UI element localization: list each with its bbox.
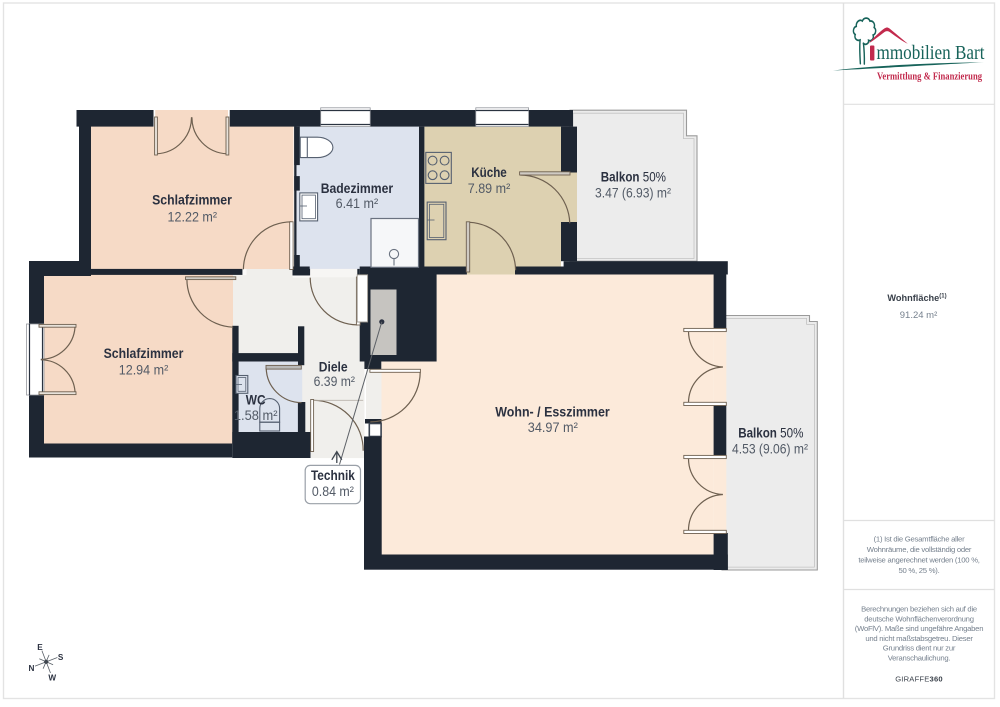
svg-text:Wohnräume, die vollständig ode: Wohnräume, die vollständig oder (867, 545, 972, 554)
svg-text:N: N (29, 664, 35, 673)
svg-text:91.24 m²: 91.24 m² (900, 310, 938, 321)
svg-text:W: W (48, 674, 56, 683)
svg-text:Grundriss dient nur zur: Grundriss dient nur zur (883, 644, 956, 653)
svg-text:(1) Ist die Gesamtfläche aller: (1) Ist die Gesamtfläche aller (874, 535, 965, 544)
svg-text:und nicht maßstabsgetreu. Dies: und nicht maßstabsgetreu. Dieser (865, 634, 973, 643)
svg-text:Küche: Küche (471, 165, 507, 180)
svg-text:deutsche Wohnflächenverordnung: deutsche Wohnflächenverordnung (864, 614, 973, 623)
svg-text:E: E (37, 643, 43, 652)
svg-text:GIRAFFE360: GIRAFFE360 (895, 675, 943, 684)
svg-text:6.39 m²: 6.39 m² (314, 374, 356, 389)
svg-text:1.58 m²: 1.58 m² (234, 408, 278, 423)
svg-text:Technik: Technik (311, 468, 355, 483)
svg-text:7.89 m²: 7.89 m² (468, 181, 511, 196)
svg-text:Schlafzimmer: Schlafzimmer (152, 192, 232, 207)
svg-text:4.53 (9.06) m²: 4.53 (9.06) m² (732, 442, 808, 457)
svg-text:Wohn- / Esszimmer: Wohn- / Esszimmer (495, 405, 610, 420)
svg-text:Balkon 50%: Balkon 50% (738, 426, 803, 441)
svg-text:12.94 m²: 12.94 m² (119, 363, 169, 378)
svg-text:6.41 m²: 6.41 m² (336, 196, 379, 211)
svg-text:Berechnungen beziehen sich auf: Berechnungen beziehen sich auf die (861, 605, 977, 614)
svg-text:WC: WC (246, 392, 266, 407)
svg-text:Diele: Diele (319, 360, 348, 375)
svg-text:50 %, 25 %).: 50 %, 25 %). (898, 566, 939, 575)
svg-text:3.47 (6.93) m²: 3.47 (6.93) m² (595, 185, 671, 200)
svg-text:(WoFlV). Maße sind ungefähre A: (WoFlV). Maße sind ungefähre Angaben (855, 624, 983, 633)
svg-text:teilweise angerechnet werden (: teilweise angerechnet werden (100 %, (858, 556, 979, 565)
svg-text:Schlafzimmer: Schlafzimmer (104, 346, 184, 361)
svg-text:S: S (58, 653, 64, 662)
svg-text:Vermittlung & Finanzierung: Vermittlung & Finanzierung (877, 72, 983, 83)
svg-text:Veranschaulichung.: Veranschaulichung. (888, 654, 951, 663)
svg-text:12.22 m²: 12.22 m² (168, 209, 218, 224)
svg-text:Badezimmer: Badezimmer (321, 181, 394, 196)
svg-text:34.97 m²: 34.97 m² (528, 420, 578, 435)
svg-text:mmobilien Bart: mmobilien Bart (877, 43, 986, 64)
svg-text:Balkon 50%: Balkon 50% (601, 170, 666, 185)
svg-text:0.84 m²: 0.84 m² (312, 484, 354, 499)
svg-text:Wohnfläche(1): Wohnfläche(1) (887, 293, 946, 303)
